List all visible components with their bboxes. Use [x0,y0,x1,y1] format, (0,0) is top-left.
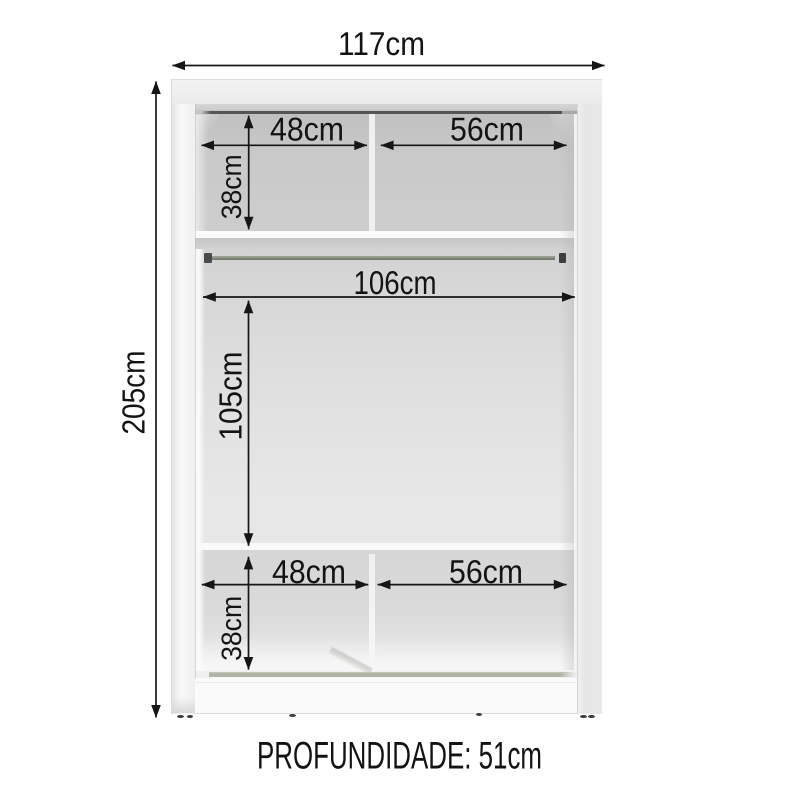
svg-text:56cm: 56cm [450,110,524,147]
svg-text:117cm: 117cm [338,25,425,62]
svg-text:56cm: 56cm [449,553,523,590]
svg-text:38cm: 38cm [216,154,247,219]
svg-text:48cm: 48cm [270,110,344,147]
svg-text:205cm: 205cm [115,351,151,435]
svg-text:106cm: 106cm [354,264,437,301]
svg-text:PROFUNDIDADE: 51cm: PROFUNDIDADE: 51cm [257,734,542,777]
svg-text:38cm: 38cm [216,596,247,661]
svg-text:105cm: 105cm [212,352,248,441]
svg-text:48cm: 48cm [272,553,346,590]
